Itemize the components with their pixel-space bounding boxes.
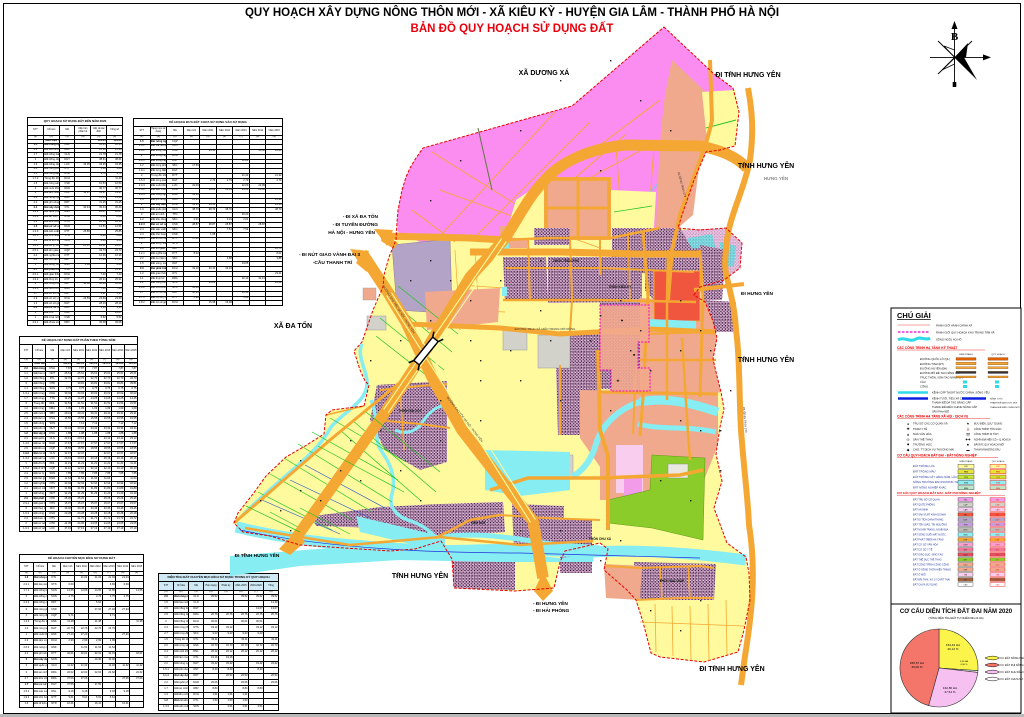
svg-text:B: B (951, 31, 959, 43)
